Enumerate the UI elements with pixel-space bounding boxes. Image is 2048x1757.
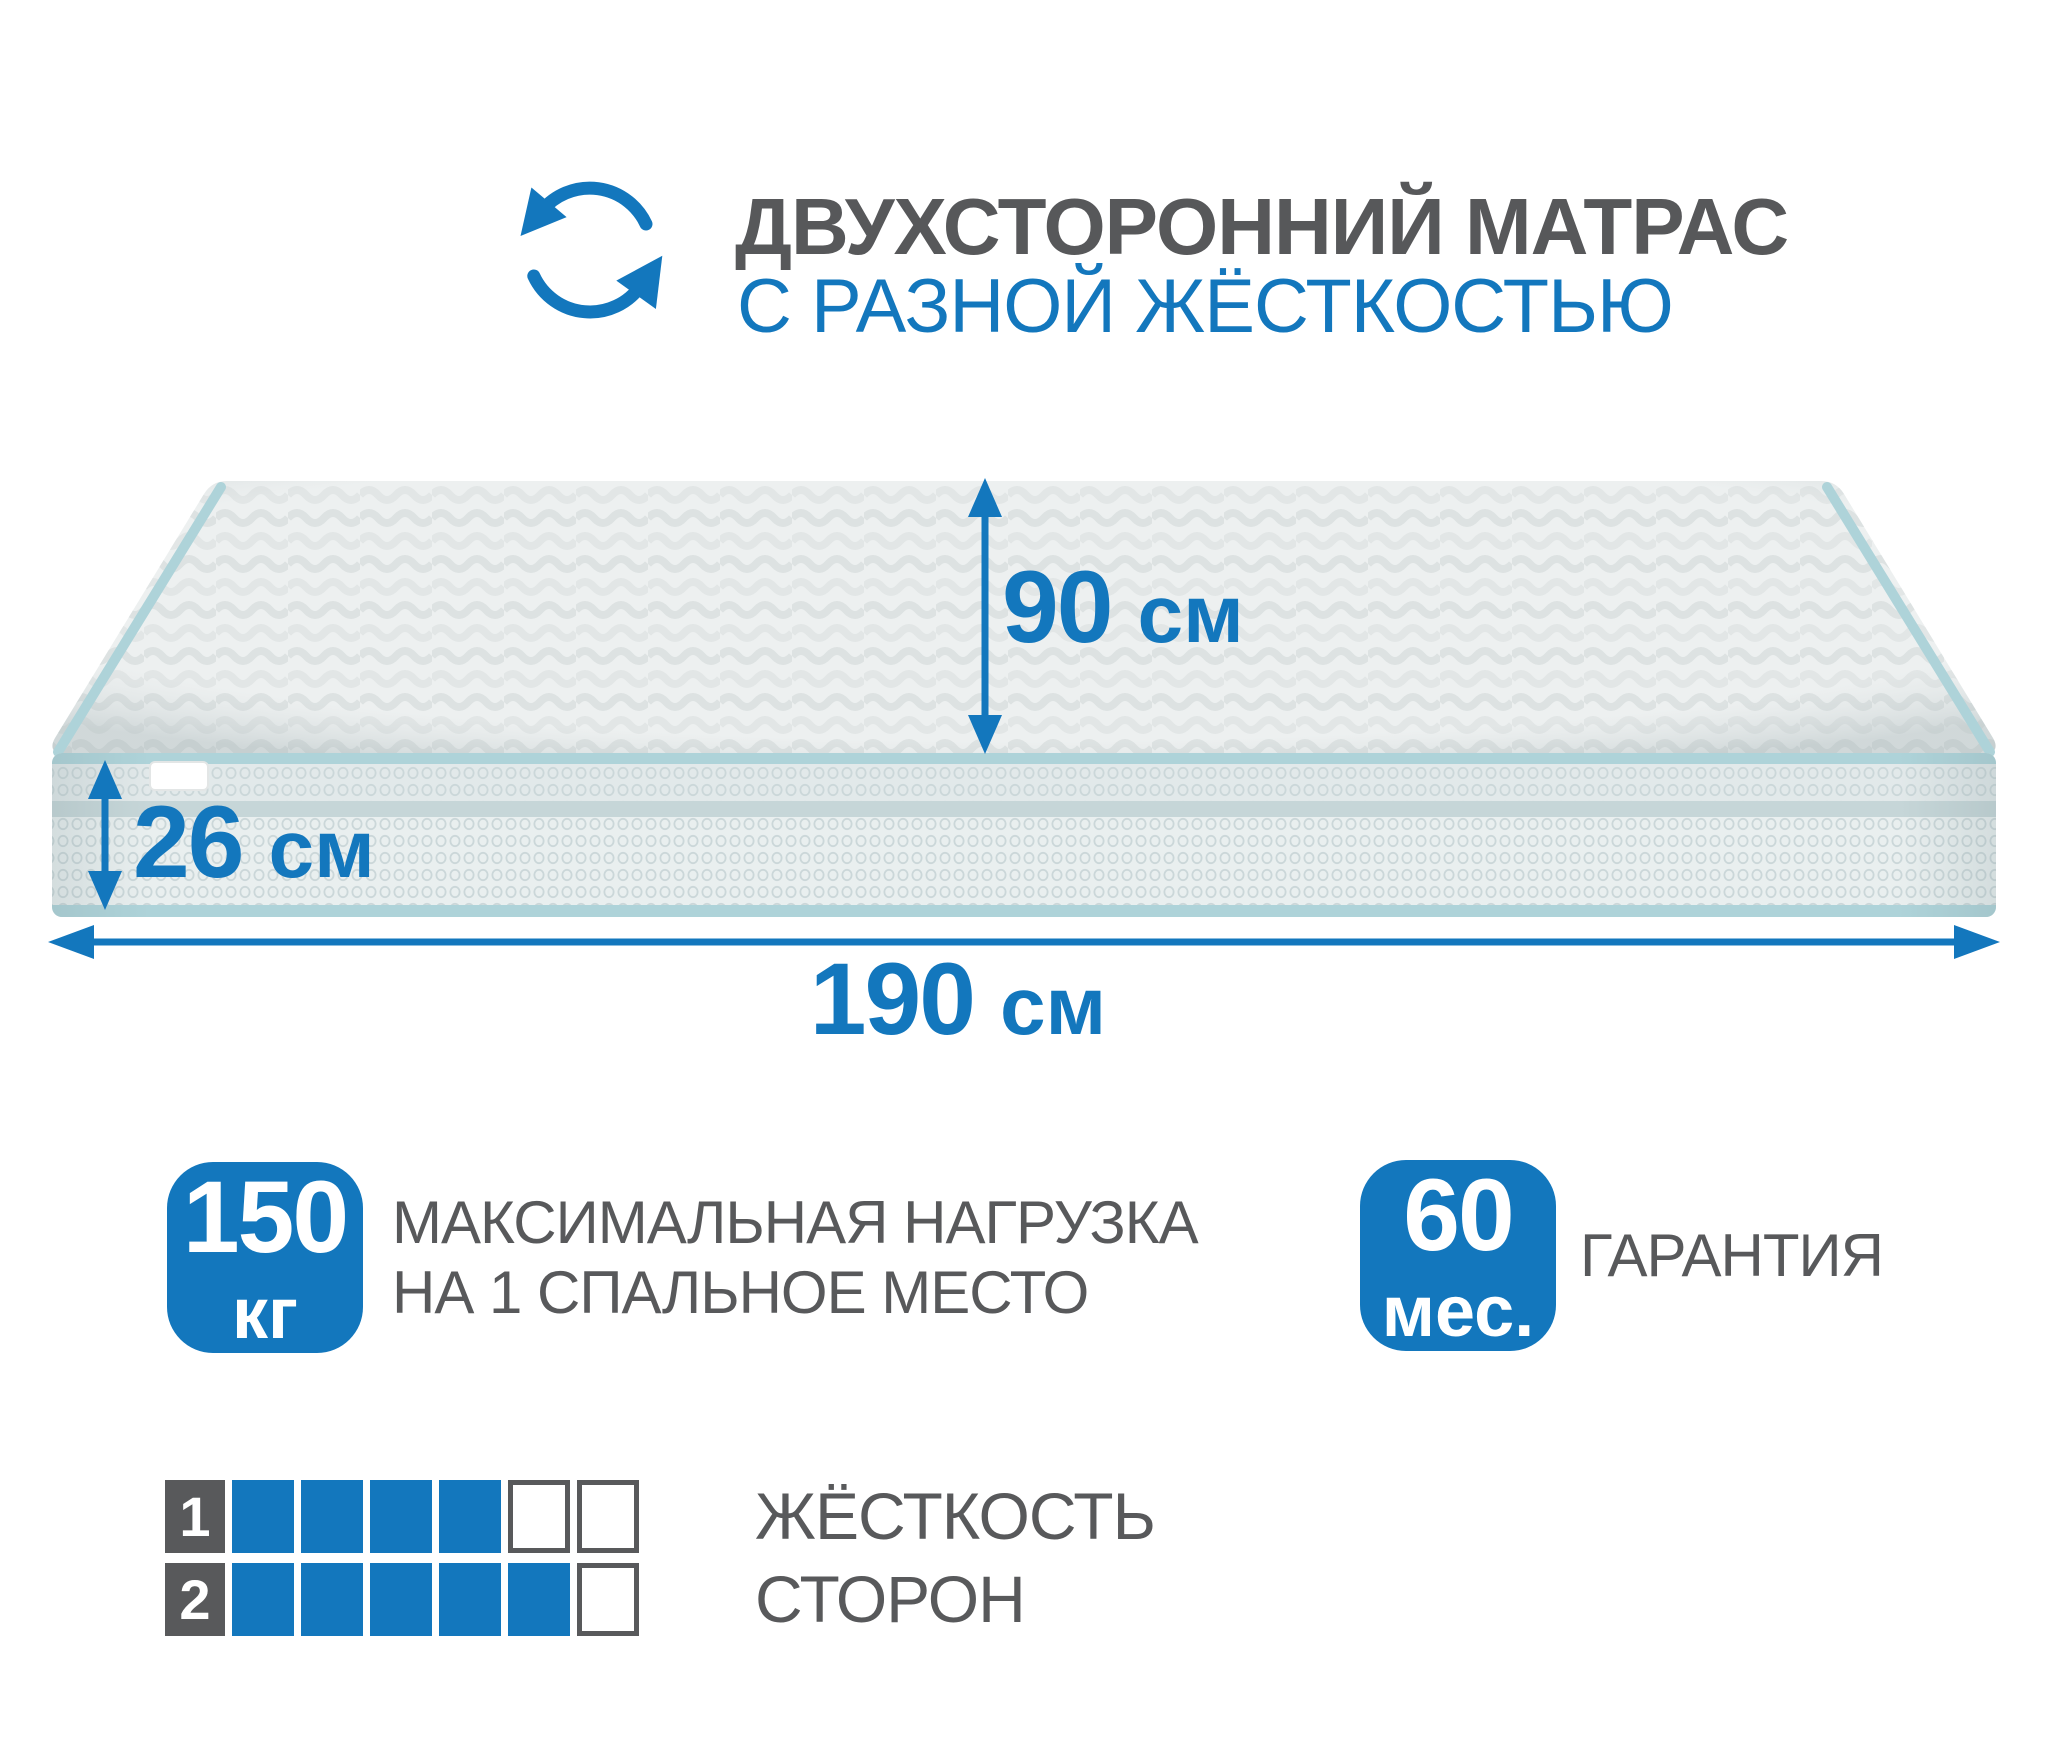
firmness-cell [232,1563,294,1636]
firmness-label-line1: ЖЁСТКОСТЬ [755,1480,1155,1553]
depth-value: 90 [1002,556,1111,658]
firmness-cell [232,1480,294,1553]
firmness-label-line2: СТОРОН [755,1563,1025,1636]
depth-unit: см [1137,574,1243,656]
firmness-cell [508,1480,570,1553]
warranty-label: ГАРАНТИЯ [1580,1160,1883,1351]
firmness-cell [577,1563,639,1636]
depth-dimension-label: 90 см [1002,556,1244,658]
firmness-cell [508,1563,570,1636]
warranty-label-text: ГАРАНТИЯ [1580,1221,1883,1291]
warranty-unit: мес. [1382,1276,1534,1348]
firmness-row: 1 [165,1480,639,1553]
firmness-scale: 12 [165,1480,639,1636]
firmness-cell [370,1563,432,1636]
firmness-cell [301,1480,363,1553]
max-load-label-line1: МАКСИМАЛЬНАЯ НАГРУЗКА [392,1188,1198,1258]
firmness-cell [301,1563,363,1636]
firmness-row: 2 [165,1563,639,1636]
max-load-value: 150 [183,1166,347,1268]
mattress-infographic: ДВУХСТОРОННИЙ МАТРАС С РАЗНОЙ ЖЁСТКОСТЬЮ [0,0,2048,1757]
max-load-label: МАКСИМАЛЬНАЯ НАГРУЗКА НА 1 СПАЛЬНОЕ МЕСТ… [392,1162,1198,1353]
firmness-cell [577,1480,639,1553]
height-unit: см [268,809,374,891]
max-load-unit: кг [232,1278,298,1350]
width-value: 190 [810,948,974,1050]
height-value: 26 [133,791,242,893]
firmness-side-number: 2 [165,1563,225,1636]
firmness-cell [439,1480,501,1553]
firmness-cell [370,1480,432,1553]
width-unit: см [1000,966,1106,1048]
warranty-value: 60 [1403,1164,1512,1266]
max-load-label-line2: НА 1 СПАЛЬНОЕ МЕСТО [392,1258,1198,1328]
width-dimension-label: 190 см [708,948,1208,1050]
warranty-badge: 60 мес. [1360,1160,1556,1351]
height-dimension-label: 26 см [133,791,375,893]
max-load-badge: 150 кг [167,1162,363,1353]
firmness-side-number: 1 [165,1480,225,1553]
firmness-cell [439,1563,501,1636]
